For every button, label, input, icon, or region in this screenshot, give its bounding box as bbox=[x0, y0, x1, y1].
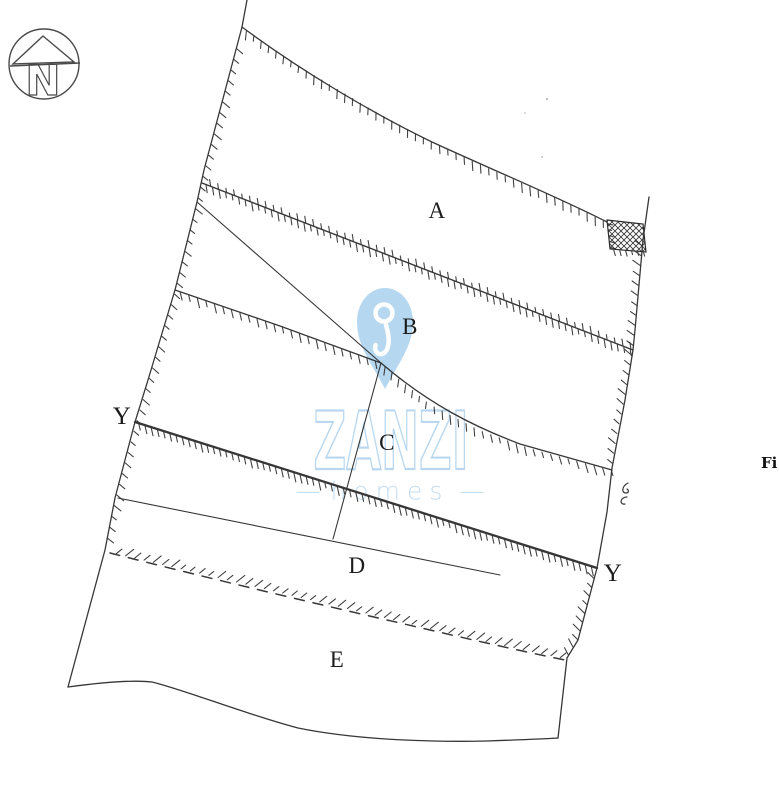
parcel-label-b: B bbox=[402, 314, 418, 340]
site-plan-page: ZANZI —homes— bbox=[0, 0, 779, 800]
parcel-label-c: C bbox=[379, 430, 395, 456]
parcel-label-a: A bbox=[428, 198, 445, 224]
clipped-edge-text: Fi bbox=[761, 454, 777, 472]
annotation-layer: N A B C D E Y Y Fi bbox=[0, 0, 779, 800]
compass-letter: N bbox=[25, 56, 60, 105]
section-marker-y-right: Y bbox=[604, 560, 623, 588]
parcel-label-d: D bbox=[348, 553, 365, 579]
section-marker-y-left: Y bbox=[113, 403, 132, 431]
parcel-label-e: E bbox=[330, 647, 345, 673]
north-arrow-icon: N bbox=[6, 24, 86, 106]
